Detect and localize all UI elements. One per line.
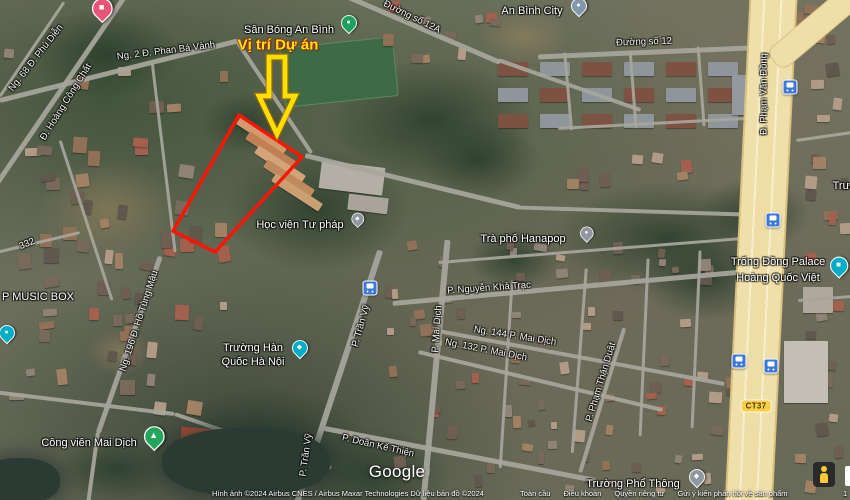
map-attribution-bar: Hình ảnh ©2024 Airbus CNES / Airbus Maxa… bbox=[0, 487, 850, 500]
building bbox=[652, 152, 664, 163]
road-label-duong-so-12: Đường số 12 bbox=[616, 36, 672, 49]
street bbox=[518, 205, 742, 216]
building bbox=[613, 311, 623, 321]
sports-field-pin-glyph-icon: ● bbox=[340, 18, 357, 27]
street bbox=[538, 46, 748, 60]
apartment-block bbox=[624, 88, 654, 102]
building bbox=[105, 249, 115, 263]
street bbox=[796, 131, 850, 142]
building bbox=[4, 49, 15, 59]
footer-link[interactable]: Quyền riêng tư bbox=[614, 489, 664, 498]
building bbox=[56, 369, 68, 386]
pegman-body-icon bbox=[820, 473, 828, 483]
pegman-head-icon bbox=[821, 466, 827, 472]
building bbox=[632, 154, 644, 164]
building bbox=[825, 62, 840, 76]
building bbox=[537, 398, 545, 409]
transit-station-icon[interactable] bbox=[783, 80, 798, 95]
building bbox=[659, 259, 666, 266]
poi-label-tra-pho-hanapop[interactable]: Trà phố Hanapop bbox=[480, 233, 565, 245]
google-logo: Google bbox=[369, 462, 426, 482]
poi-pin[interactable]: ● bbox=[0, 324, 14, 348]
map-control-partial[interactable] bbox=[845, 466, 850, 486]
imagery-attribution: Hình ảnh ©2024 Airbus CNES / Airbus Maxa… bbox=[212, 489, 484, 498]
building bbox=[77, 241, 90, 253]
apartment-block bbox=[666, 62, 696, 76]
city-pin[interactable]: ● bbox=[570, 0, 586, 21]
building bbox=[556, 269, 569, 279]
building bbox=[117, 205, 128, 220]
building bbox=[474, 15, 484, 24]
school-pin[interactable]: ◆ bbox=[291, 339, 307, 363]
building bbox=[840, 222, 850, 234]
building bbox=[72, 137, 87, 154]
footer-links: Toàn cầuĐiều khoảnQuyền riêng tưGửi ý ki… bbox=[520, 489, 788, 498]
building bbox=[512, 312, 521, 319]
building bbox=[574, 429, 586, 443]
building bbox=[674, 454, 682, 463]
building bbox=[411, 54, 423, 63]
scale-bar-partial: 1 bbox=[843, 489, 847, 498]
poi-label-truong-han-quoc-line1[interactable]: Trường Hàn bbox=[223, 342, 283, 354]
building bbox=[115, 252, 124, 268]
building bbox=[567, 179, 579, 189]
building bbox=[832, 97, 842, 110]
building bbox=[578, 168, 588, 182]
building bbox=[806, 331, 816, 339]
transit-station-icon[interactable] bbox=[764, 359, 779, 374]
street bbox=[324, 426, 596, 483]
building bbox=[17, 253, 32, 269]
building bbox=[472, 373, 479, 383]
transit-station-icon[interactable] bbox=[732, 354, 747, 369]
building bbox=[44, 276, 61, 288]
building bbox=[631, 463, 640, 472]
building bbox=[99, 218, 109, 228]
building bbox=[220, 302, 227, 310]
project-location-label: Vị trí Dự án bbox=[238, 37, 319, 54]
building bbox=[795, 454, 806, 464]
poi-label-an-binh-city[interactable]: An Bình City bbox=[501, 5, 562, 17]
building bbox=[659, 355, 669, 367]
building bbox=[600, 173, 610, 187]
poi-label-san-bong-an-binh[interactable]: Sân Bóng An Bình bbox=[244, 24, 334, 36]
building bbox=[87, 150, 100, 165]
footer-link[interactable]: Điều khoản bbox=[563, 489, 601, 498]
building bbox=[528, 420, 536, 427]
building bbox=[174, 305, 189, 320]
palace-pin-glyph-icon: ■ bbox=[829, 259, 849, 269]
poi-label-trong-dong-palace-line2[interactable]: Hoàng Quốc Việt bbox=[736, 272, 820, 284]
poi-pin-glyph-icon: ● bbox=[579, 229, 593, 237]
building bbox=[829, 212, 837, 225]
palace-pin[interactable]: ■ bbox=[829, 255, 847, 283]
large-building bbox=[784, 341, 828, 403]
building bbox=[474, 475, 482, 487]
road-label-332: 332 bbox=[18, 236, 37, 252]
street-view-pegman-button[interactable] bbox=[813, 462, 835, 487]
poi-label-trong-dong-palace[interactable]: Trống Đồng Palace bbox=[731, 256, 825, 268]
building bbox=[146, 341, 157, 358]
building bbox=[89, 307, 99, 319]
building bbox=[193, 315, 204, 331]
building bbox=[815, 422, 828, 436]
building bbox=[559, 361, 570, 374]
building bbox=[75, 173, 90, 188]
street bbox=[421, 240, 451, 500]
building bbox=[217, 245, 232, 262]
building bbox=[39, 329, 51, 341]
building bbox=[804, 175, 817, 189]
school-pin-glyph-icon: ◆ bbox=[351, 215, 365, 222]
building bbox=[113, 314, 122, 325]
building bbox=[709, 392, 722, 404]
building bbox=[646, 393, 658, 400]
building bbox=[186, 400, 203, 416]
apartment-block bbox=[498, 114, 528, 128]
building bbox=[521, 444, 533, 453]
building bbox=[827, 35, 836, 44]
building bbox=[447, 425, 459, 439]
city-pin-glyph-icon: ● bbox=[570, 1, 587, 10]
building bbox=[671, 267, 679, 274]
road-label-mai-dich: P. Mai Dịch bbox=[430, 305, 444, 353]
building bbox=[650, 381, 662, 393]
sports-field-pin[interactable]: ● bbox=[340, 14, 356, 38]
building bbox=[160, 232, 172, 248]
building bbox=[813, 157, 826, 169]
building bbox=[605, 425, 613, 435]
poi-pin-glyph-icon: ● bbox=[0, 328, 15, 337]
apartment-block bbox=[498, 88, 528, 102]
apartment-block bbox=[708, 62, 738, 76]
lodging-pin[interactable]: ■ bbox=[91, 0, 112, 28]
dirt-patch bbox=[38, 158, 180, 260]
building bbox=[108, 351, 119, 363]
building bbox=[692, 454, 703, 461]
building bbox=[555, 255, 565, 263]
building bbox=[410, 317, 417, 326]
apartment-block bbox=[666, 88, 696, 102]
building bbox=[602, 461, 610, 470]
building bbox=[489, 18, 500, 26]
park-pin-glyph-icon: ▲ bbox=[143, 429, 165, 441]
building bbox=[388, 365, 397, 377]
apartment-block bbox=[540, 88, 570, 102]
building bbox=[547, 441, 556, 449]
building bbox=[831, 301, 843, 311]
poi-label-truncated-right-edge[interactable]: Trường bbox=[833, 180, 850, 192]
building bbox=[817, 115, 830, 122]
building bbox=[392, 288, 399, 298]
street bbox=[150, 62, 176, 252]
road-label-pham-van-dong: Đ. Phạm Văn Đồng bbox=[759, 53, 770, 135]
building bbox=[583, 323, 591, 330]
building bbox=[588, 307, 595, 316]
poi-label-cong-vien-mai-dich[interactable]: Công viên Mai Dịch bbox=[41, 437, 136, 449]
school-pin[interactable]: ◆ bbox=[351, 212, 364, 231]
building bbox=[710, 426, 724, 437]
building bbox=[551, 422, 557, 429]
building bbox=[146, 374, 155, 387]
building bbox=[505, 405, 512, 417]
building bbox=[805, 189, 816, 200]
building bbox=[189, 226, 202, 242]
transit-station-icon[interactable] bbox=[766, 213, 781, 228]
poi-pin[interactable]: ● bbox=[579, 226, 593, 246]
building bbox=[811, 80, 824, 89]
building bbox=[179, 164, 196, 179]
building bbox=[220, 71, 228, 82]
lodging-pin-glyph-icon: ■ bbox=[91, 1, 113, 13]
street bbox=[638, 258, 649, 436]
building bbox=[42, 308, 57, 316]
building bbox=[456, 308, 464, 319]
apartment-block bbox=[582, 62, 612, 76]
building bbox=[828, 414, 838, 424]
footer-link[interactable]: Toàn cầu bbox=[520, 489, 550, 498]
building bbox=[167, 103, 182, 113]
building bbox=[383, 34, 394, 46]
building bbox=[133, 138, 149, 148]
building bbox=[679, 318, 691, 327]
building bbox=[120, 380, 135, 395]
poi-label-hoc-vien-tu-phap[interactable]: Học viện Tư pháp bbox=[256, 219, 343, 231]
building bbox=[513, 416, 521, 429]
poi-label-music-box[interactable]: P MUSIC BOX bbox=[2, 291, 74, 303]
building bbox=[676, 171, 688, 181]
building bbox=[835, 446, 843, 458]
building bbox=[407, 240, 418, 250]
building bbox=[174, 200, 190, 216]
transit-station-icon[interactable] bbox=[363, 281, 378, 296]
building bbox=[25, 368, 34, 376]
street bbox=[0, 390, 175, 416]
building bbox=[657, 248, 666, 258]
building bbox=[387, 328, 394, 335]
route-badge-ct37: CT37 bbox=[742, 401, 771, 412]
school-pin-glyph-icon: ◆ bbox=[688, 472, 705, 481]
street bbox=[696, 46, 705, 126]
footer-link[interactable]: Gửi ý kiến phản hồi về sản phẩm bbox=[677, 489, 787, 498]
building bbox=[215, 223, 228, 237]
building bbox=[122, 287, 132, 300]
park-pin[interactable]: ▲ bbox=[143, 425, 164, 456]
apartment-block bbox=[624, 62, 654, 76]
school-pin-glyph-icon: ◆ bbox=[291, 343, 308, 352]
satellite-map[interactable]: Vị trí Dự án CT37 Google Hình ảnh ©2024 … bbox=[0, 0, 850, 500]
building bbox=[44, 248, 58, 263]
building bbox=[538, 452, 544, 464]
poi-label-truong-han-quoc-line2[interactable]: Quốc Hà Nội bbox=[222, 356, 285, 368]
road-label-hoang-cong-chat: Đ. Hoàng Công Chất bbox=[38, 62, 94, 143]
building bbox=[456, 381, 466, 390]
